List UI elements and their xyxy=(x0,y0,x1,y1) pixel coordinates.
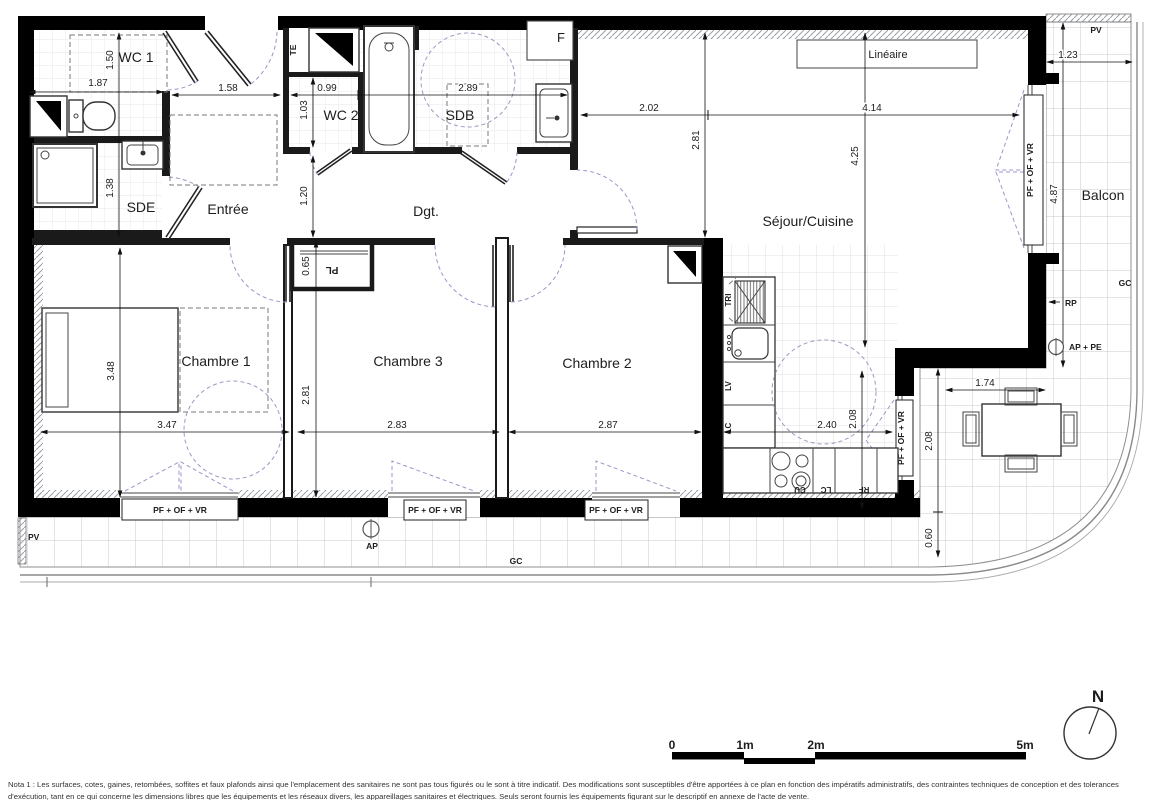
dim-wc2-w: 0.99 xyxy=(317,83,337,94)
window-label-sejour: PF + OF + VR xyxy=(1025,143,1035,197)
gc-label-right: GC xyxy=(1119,278,1132,288)
label-lv: LV xyxy=(724,381,733,391)
ap-pe-label: AP + PE xyxy=(1069,342,1102,352)
dim-sejour-w1: 2.02 xyxy=(639,103,659,114)
window-label-ch1: PF + OF + VR xyxy=(153,505,207,515)
dim-dgt-h: 1.20 xyxy=(299,186,310,206)
rp-label: RP xyxy=(1065,298,1077,308)
room-labels: WC 1 SDE Entrée WC 2 SDB Dgt. Séjour/Cui… xyxy=(119,44,1125,371)
north-label: N xyxy=(1092,687,1104,706)
room-label-ch2: Chambre 2 xyxy=(562,355,631,371)
dim-wc1-w: 1.87 xyxy=(88,78,108,89)
door-sejour xyxy=(577,170,637,233)
ap-label: AP xyxy=(366,541,378,551)
room-label-dgt: Dgt. xyxy=(413,203,439,219)
entry-door xyxy=(205,31,277,86)
dim-sde-h: 1.38 xyxy=(105,178,116,198)
dim-ch3-h: 2.81 xyxy=(301,385,312,405)
door-ch1 xyxy=(230,245,290,302)
label-tri: TRI xyxy=(724,294,733,307)
room-label-sde: SDE xyxy=(127,199,156,215)
dim-kitchen-win-h: 2.08 xyxy=(848,409,859,429)
room-label-sdb: SDB xyxy=(446,107,475,123)
privacy-screen-top xyxy=(1046,14,1131,22)
door-sdb xyxy=(460,151,517,184)
scale-5m: 5m xyxy=(1016,738,1033,752)
window-post-top xyxy=(1046,73,1059,84)
dim-wc2-h: 1.03 xyxy=(299,100,310,120)
room-label-ch3: Chambre 3 xyxy=(373,353,442,369)
north-needle xyxy=(1089,708,1099,734)
privacy-screen-left xyxy=(18,518,26,564)
label-lc-row: LC xyxy=(820,485,831,494)
dim-balcon-s: 2.08 xyxy=(924,431,935,451)
floorplan-page: PF + OF + VR PF + OF + VR PF + OF + VR xyxy=(0,0,1155,800)
dim-balcon-h: 4.87 xyxy=(1049,184,1060,204)
duct-te xyxy=(309,28,359,72)
duct-ch2 xyxy=(668,246,702,283)
floorplan-drawing: PF + OF + VR PF + OF + VR PF + OF + VR xyxy=(0,0,1155,800)
north-arrow: N xyxy=(1064,687,1116,759)
kitchen-sink xyxy=(727,328,768,359)
scale-1m: 1m xyxy=(736,738,753,752)
scale-bar: 0 1m 2m 5m xyxy=(669,738,1034,764)
pv-label-bottom: PV xyxy=(28,532,40,542)
door-sde xyxy=(166,177,202,239)
window-ch3: PF + OF + VR xyxy=(388,461,480,520)
door-ch2 xyxy=(510,245,565,302)
dim-wc1-h: 1.50 xyxy=(105,50,116,70)
window-sejour-east: PF + OF + VR xyxy=(996,85,1046,253)
lineaire-label: Linéaire xyxy=(868,49,907,61)
door-wc2 xyxy=(310,149,352,175)
window-label-ch3: PF + OF + VR xyxy=(408,505,462,515)
room-label-balcon: Balcon xyxy=(1082,187,1125,203)
window-label-ch2: PF + OF + VR xyxy=(589,505,643,515)
dim-table-w: 1.74 xyxy=(975,378,995,389)
te-label: TE xyxy=(288,44,298,55)
dim-ch3-w: 2.83 xyxy=(387,420,407,431)
dim-sejour-h2: 4.25 xyxy=(850,146,861,166)
window-post-bottom xyxy=(1046,253,1059,264)
window-ch2: PF + OF + VR xyxy=(585,461,680,520)
dim-entree-w: 1.58 xyxy=(218,83,238,94)
f-label: F xyxy=(557,30,565,45)
dim-sejour-w2: 4.14 xyxy=(862,103,882,114)
bathtub-sdb xyxy=(364,26,414,152)
windows: PF + OF + VR PF + OF + VR PF + OF + VR xyxy=(120,85,1046,520)
dim-kitchen-w: 2.40 xyxy=(817,420,837,431)
label-rf: RF xyxy=(859,485,870,494)
room-label-ch1: Chambre 1 xyxy=(181,353,250,369)
pl-label: PL xyxy=(326,264,339,275)
lineaire-box: Linéaire xyxy=(797,40,977,68)
pv-label-right: PV xyxy=(1090,25,1102,35)
dim-ch2-w: 2.87 xyxy=(598,420,618,431)
sink-sdb xyxy=(536,84,572,142)
shower-sde xyxy=(33,144,97,207)
label-cu: CU xyxy=(794,485,806,494)
f-box: F xyxy=(527,21,573,60)
room-label-wc2: WC 2 xyxy=(324,107,359,123)
room-label-wc1: WC 1 xyxy=(119,49,154,65)
dim-pl-h: 0.65 xyxy=(301,256,312,276)
door-wc1 xyxy=(163,31,198,90)
toilet-wc1 xyxy=(69,100,115,132)
ap-marker: AP xyxy=(363,519,379,551)
nota-text: Nota 1 : Les surfaces, cotes, gaines, re… xyxy=(8,779,1150,800)
dim-sejour-h1: 2.81 xyxy=(691,130,702,150)
scale-0: 0 xyxy=(669,738,676,752)
room-label-entree: Entrée xyxy=(207,201,248,217)
duct-wc1 xyxy=(30,96,67,137)
dim-ch1-w: 3.47 xyxy=(157,420,177,431)
wall-ch3-ch2 xyxy=(496,238,508,498)
gc-label-bottom: GC xyxy=(510,556,523,566)
window-ch1: PF + OF + VR xyxy=(120,462,238,520)
dim-sdb-w: 2.89 xyxy=(458,83,478,94)
dim-balcon-w: 1.23 xyxy=(1058,50,1078,61)
sink-sde xyxy=(122,141,163,169)
dim-balcon-e: 0.60 xyxy=(924,528,935,548)
room-label-sejour: Séjour/Cuisine xyxy=(762,213,853,229)
scale-2m: 2m xyxy=(807,738,824,752)
door-ch3 xyxy=(435,245,496,307)
dim-ch1-h: 3.48 xyxy=(106,361,117,381)
